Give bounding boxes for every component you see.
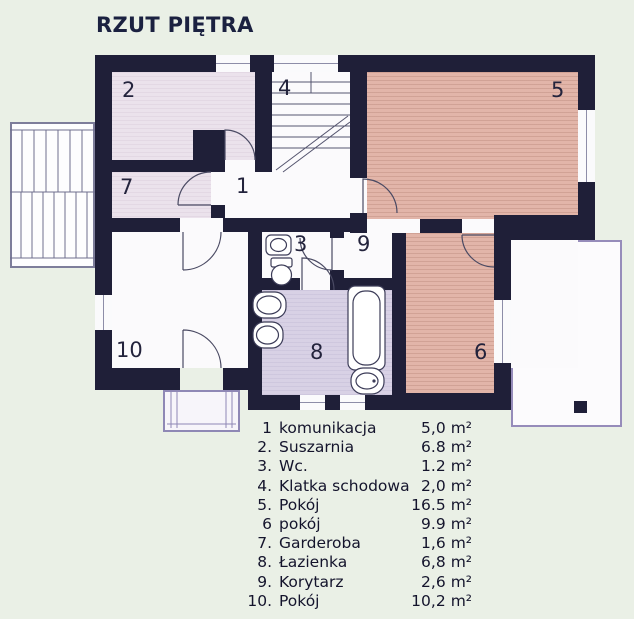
room-label-10: 10	[116, 340, 143, 361]
wall-room8-top-a	[248, 278, 300, 290]
wall-band-left-b	[223, 218, 367, 232]
window-top-1	[216, 55, 250, 72]
chimney-block	[193, 130, 225, 162]
chimney-square	[574, 401, 587, 413]
wall-4-5	[350, 72, 367, 178]
wall-band-room6-top	[420, 219, 462, 233]
legend-row: 4.Klatka schodowa2,0m²	[246, 477, 472, 496]
room-label-5: 5	[551, 80, 564, 101]
window-right-room6	[494, 300, 511, 363]
wall-room10-right	[248, 232, 262, 395]
room-label-2: 2	[122, 80, 135, 101]
room-8-lazienka	[262, 290, 392, 395]
room-label-6: 6	[474, 342, 487, 363]
room-label-3: 3	[294, 234, 307, 255]
legend-row: 1komunikacja5,0m²	[246, 419, 472, 438]
balcony	[163, 390, 240, 432]
wall-wc-right-a	[330, 232, 344, 238]
window-bottom-room8-a	[300, 395, 325, 410]
window-right-room5	[578, 110, 595, 182]
room-legend: 1komunikacja5,0m² 2.Suszarnia6.8m² 3.Wc.…	[246, 419, 472, 611]
page-title: RZUT PIĘTRA	[96, 13, 254, 37]
room-6-pokoj	[406, 233, 494, 393]
wall-band-left-a	[112, 218, 180, 232]
legend-row: 8.Łazienka6,8m²	[246, 553, 472, 572]
room-label-9: 9	[357, 234, 370, 255]
legend-row: 3.Wc.1.2m²	[246, 457, 472, 476]
room-label-8: 8	[310, 342, 323, 363]
wall-left	[95, 72, 112, 390]
floor-plan-page: RZUT PIĘTRA	[0, 0, 634, 619]
wall-2-4	[255, 72, 272, 172]
wall-band-right	[494, 215, 595, 240]
window-left-room10	[95, 295, 112, 330]
wall-room6-bottom	[406, 393, 511, 410]
wall-room7-right-stub	[211, 205, 225, 218]
legend-row: 9.Korytarz2,6m²	[246, 573, 472, 592]
legend-row: 6pokój9.9m²	[246, 515, 472, 534]
wall-room10-bottom-b	[223, 368, 248, 390]
room-label-7: 7	[120, 177, 133, 198]
wall-room8-room6	[392, 233, 406, 410]
wall-room10-bottom-a	[95, 368, 180, 390]
external-staircase	[10, 122, 95, 268]
window-top-2	[274, 55, 338, 72]
legend-row: 2.Suszarnia6.8m²	[246, 438, 472, 457]
room-label-4: 4	[278, 78, 291, 99]
legend-row: 5.Pokój16.5m²	[246, 496, 472, 515]
room-5-pokoj	[367, 72, 578, 219]
legend-row: 7.Garderoba1,6m²	[246, 534, 472, 553]
wall-top	[95, 55, 595, 72]
legend-row: 10.Pokój10,2m²	[246, 592, 472, 611]
room-label-1: 1	[236, 176, 249, 197]
window-bottom-room8-b	[340, 395, 365, 410]
